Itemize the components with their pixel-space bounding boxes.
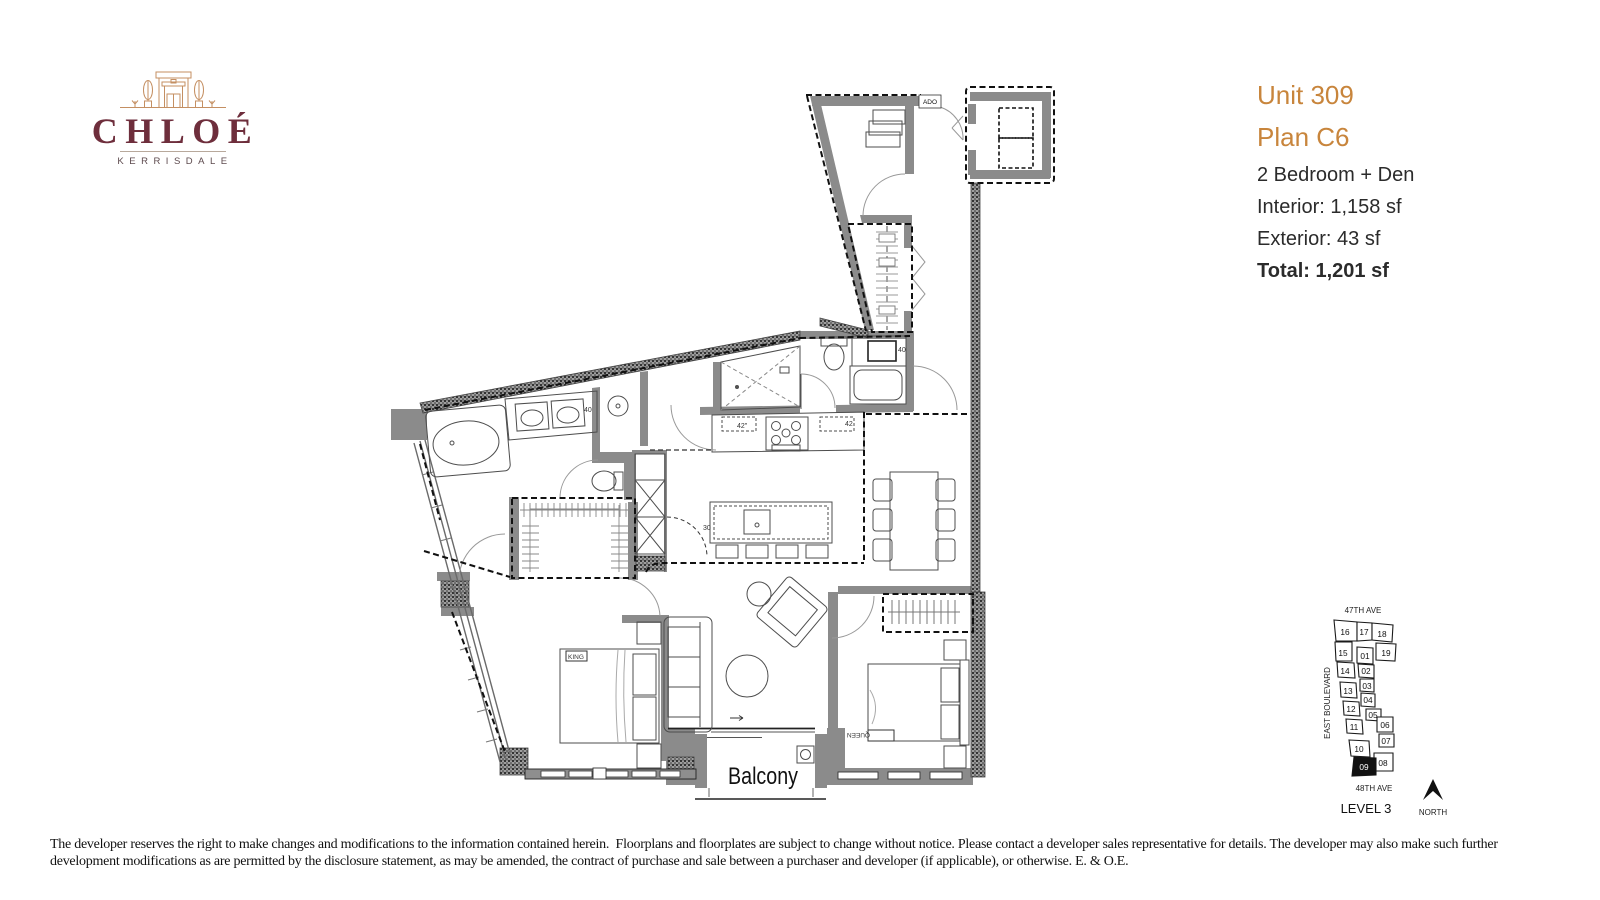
svg-text:06: 06 bbox=[1380, 720, 1390, 730]
svg-text:03: 03 bbox=[1362, 681, 1372, 691]
svg-text:15: 15 bbox=[1338, 648, 1348, 658]
svg-text:07: 07 bbox=[1381, 736, 1391, 746]
svg-text:01: 01 bbox=[1360, 651, 1370, 661]
svg-text:05: 05 bbox=[1368, 710, 1378, 720]
svg-text:08: 08 bbox=[1378, 758, 1388, 768]
svg-text:40: 40 bbox=[584, 407, 592, 414]
svg-text:02: 02 bbox=[1361, 666, 1371, 676]
svg-text:47TH AVE: 47TH AVE bbox=[1345, 606, 1382, 615]
svg-text:QUEEN: QUEEN bbox=[847, 731, 870, 738]
svg-text:16: 16 bbox=[1340, 627, 1350, 637]
svg-text:14: 14 bbox=[1340, 666, 1350, 676]
svg-text:EAST BOULEVARD: EAST BOULEVARD bbox=[1323, 667, 1332, 739]
svg-text:12: 12 bbox=[1346, 704, 1356, 714]
svg-text:17: 17 bbox=[1359, 627, 1369, 637]
svg-text:30: 30 bbox=[703, 525, 711, 532]
svg-text:40: 40 bbox=[898, 347, 906, 354]
svg-text:10: 10 bbox=[1354, 744, 1364, 754]
svg-text:42: 42 bbox=[845, 421, 853, 428]
svg-text:ADO: ADO bbox=[923, 99, 937, 106]
svg-text:42": 42" bbox=[737, 423, 748, 430]
svg-text:11: 11 bbox=[1350, 722, 1359, 732]
svg-text:19: 19 bbox=[1381, 648, 1391, 658]
svg-text:13: 13 bbox=[1343, 686, 1353, 696]
svg-text:Balcony: Balcony bbox=[728, 763, 798, 790]
svg-text:04: 04 bbox=[1363, 695, 1373, 705]
svg-text:09: 09 bbox=[1359, 762, 1369, 772]
svg-text:NORTH: NORTH bbox=[1419, 808, 1448, 817]
svg-text:18: 18 bbox=[1377, 629, 1387, 639]
svg-text:LEVEL 3: LEVEL 3 bbox=[1341, 801, 1392, 816]
svg-text:48TH AVE: 48TH AVE bbox=[1356, 784, 1393, 793]
svg-text:KING: KING bbox=[568, 654, 584, 661]
